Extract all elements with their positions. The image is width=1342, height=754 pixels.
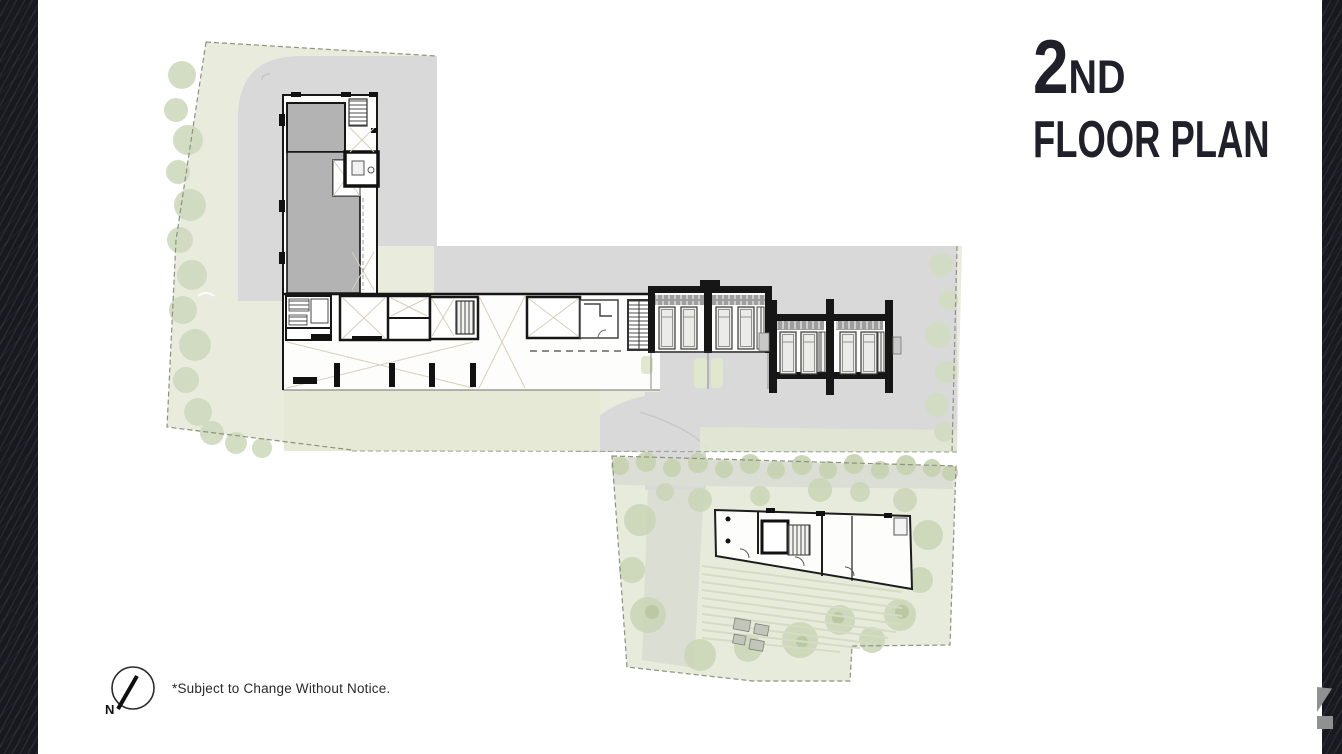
wing-module-5 [580,300,618,338]
tower-wing [279,92,378,301]
service-core [345,152,378,186]
wing-module-4 [527,297,580,338]
left-dark-band [0,0,38,754]
right-dark-band [1322,0,1342,754]
wing-module-2 [340,296,430,341]
wing-module-3 [430,297,478,339]
title-suffix: ND [1069,53,1126,100]
wing-module-1 [286,296,331,340]
tower-stair [349,99,367,126]
wing-stair [628,300,650,350]
north-label: N [105,702,114,717]
logo-fragment-icon [1317,716,1333,729]
page-title: 2ND FLOOR PLAN [1033,30,1342,166]
title-floor-number: 2ND [1033,30,1317,106]
title-number: 2 [1033,30,1067,106]
disclaimer-text: *Subject to Change Without Notice. [172,681,390,696]
title-subtitle: FLOOR PLAN [1033,114,1270,166]
north-compass-icon [112,667,154,709]
